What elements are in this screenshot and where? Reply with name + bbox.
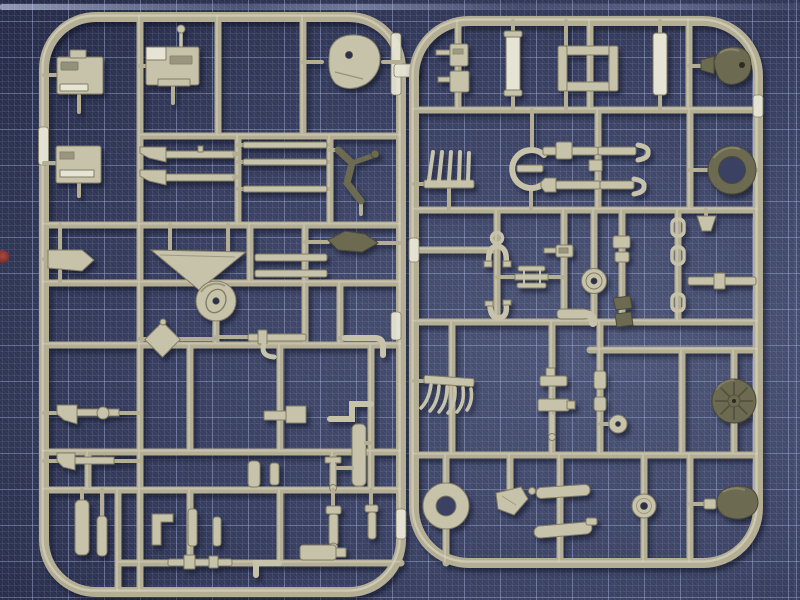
round-hatch-plate-part bbox=[303, 35, 401, 89]
dark-dome-part bbox=[690, 486, 758, 519]
washer-disc-part bbox=[632, 494, 656, 518]
rifle-part-1 bbox=[140, 146, 238, 162]
gun-body-part-2 bbox=[438, 71, 469, 92]
short-rifle-part-1 bbox=[44, 405, 140, 424]
bottom-plug-part bbox=[300, 545, 346, 560]
vertical-plug-parts-left bbox=[75, 490, 107, 556]
ball-disc-part bbox=[600, 415, 627, 433]
short-rifle-part-2 bbox=[44, 453, 140, 470]
bell-knob-part bbox=[689, 47, 751, 84]
right-sprue-frame bbox=[414, 21, 758, 563]
sprues-photo bbox=[0, 0, 800, 600]
fitted-rod-part bbox=[168, 555, 232, 569]
t-bracket-parts bbox=[538, 368, 575, 441]
sprue-gate-tag bbox=[391, 312, 401, 340]
rod-fitting-part bbox=[688, 273, 756, 289]
sprue-gate-tag bbox=[409, 238, 419, 262]
left-sprue bbox=[39, 16, 420, 592]
sprue-gate-tag bbox=[396, 509, 406, 539]
sprue-gate-tag bbox=[753, 95, 763, 117]
bright-strip-part-1 bbox=[504, 21, 522, 110]
sprue-gate-tag bbox=[39, 127, 49, 165]
rod-pair-part bbox=[255, 254, 327, 277]
right-sprue-runner-highlight bbox=[413, 20, 757, 562]
annulus-ring-part bbox=[423, 483, 469, 529]
dark-winged-part bbox=[305, 231, 401, 252]
curved-rake-part bbox=[414, 375, 474, 413]
stepped-block-part bbox=[264, 406, 306, 423]
l-bracket-part bbox=[44, 225, 94, 283]
claw-rod-part-2 bbox=[541, 160, 644, 194]
spoked-wheel-part bbox=[712, 379, 756, 423]
t-pin-part bbox=[325, 457, 341, 492]
right-sprue-frame-highlight bbox=[413, 20, 757, 562]
mg-receiver-part-3 bbox=[44, 146, 101, 196]
biplane-bracket-part bbox=[497, 266, 564, 288]
small-cylinder-parts bbox=[248, 461, 279, 487]
rifle-part-2 bbox=[140, 170, 238, 185]
l-bend-strip-part bbox=[330, 404, 371, 419]
bright-strip-part-2 bbox=[653, 21, 667, 110]
road-wheel-part bbox=[196, 281, 236, 321]
mg-receiver-part-1 bbox=[44, 50, 103, 112]
plug-pin-part-1 bbox=[326, 490, 341, 551]
right-sprue-runners bbox=[414, 21, 758, 563]
pipe-elbow-part bbox=[256, 563, 279, 575]
rod-parts bbox=[238, 142, 330, 192]
g-clamp-ring-part bbox=[512, 110, 546, 210]
gun-body-part-1 bbox=[436, 44, 468, 66]
mg-receiver-part-2 bbox=[140, 25, 199, 103]
right-sprue bbox=[409, 20, 763, 563]
angled-bracket-part bbox=[496, 487, 528, 515]
cutting-mat-photo: Two pale olive-khaki model kit sprues (r… bbox=[0, 0, 800, 600]
hub-disc-part bbox=[582, 269, 607, 294]
dark-tire-ring-part bbox=[690, 146, 758, 194]
dark-lever-part bbox=[330, 150, 379, 214]
small-gun-part bbox=[544, 245, 573, 257]
plug-pin-part-2 bbox=[365, 490, 378, 539]
rake-comb-part bbox=[414, 152, 474, 210]
diamond-plate-part bbox=[140, 319, 216, 357]
